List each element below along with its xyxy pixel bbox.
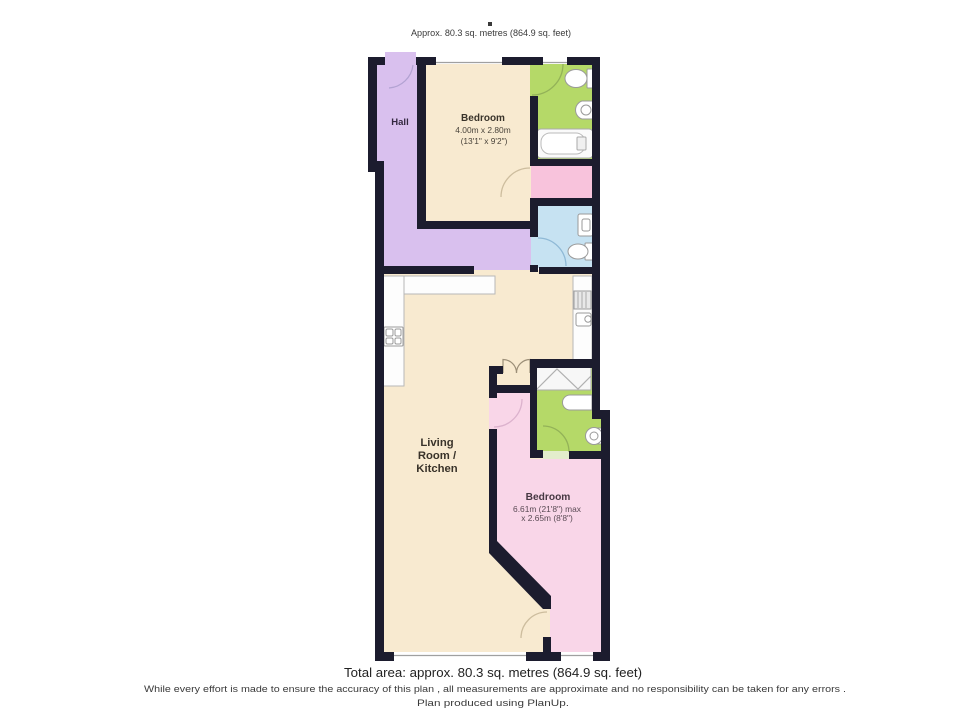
svg-text:Total area: approx. 80.3 sq. m: Total area: approx. 80.3 sq. metres (864…: [344, 665, 642, 680]
svg-text:Approx. 80.3 sq. metres (864.9: Approx. 80.3 sq. metres (864.9 sq. feet): [411, 28, 571, 38]
svg-text:Room /: Room /: [418, 450, 457, 462]
svg-text:x 2.65m (8'8"): x 2.65m (8'8"): [521, 513, 573, 523]
svg-text:(13'1" x 9'2"): (13'1" x 9'2"): [461, 136, 508, 146]
svg-text:Living: Living: [420, 437, 453, 449]
svg-text:Hall: Hall: [391, 117, 408, 128]
svg-text:Bedroom: Bedroom: [461, 113, 505, 124]
svg-text:Bedroom: Bedroom: [526, 492, 571, 503]
svg-text:While every effort is made to: While every effort is made to ensure the…: [144, 684, 846, 695]
svg-text:Kitchen: Kitchen: [416, 463, 458, 475]
svg-text:Plan produced using PlanUp.: Plan produced using PlanUp.: [417, 698, 569, 709]
svg-text:4.00m x 2.80m: 4.00m x 2.80m: [455, 125, 510, 135]
